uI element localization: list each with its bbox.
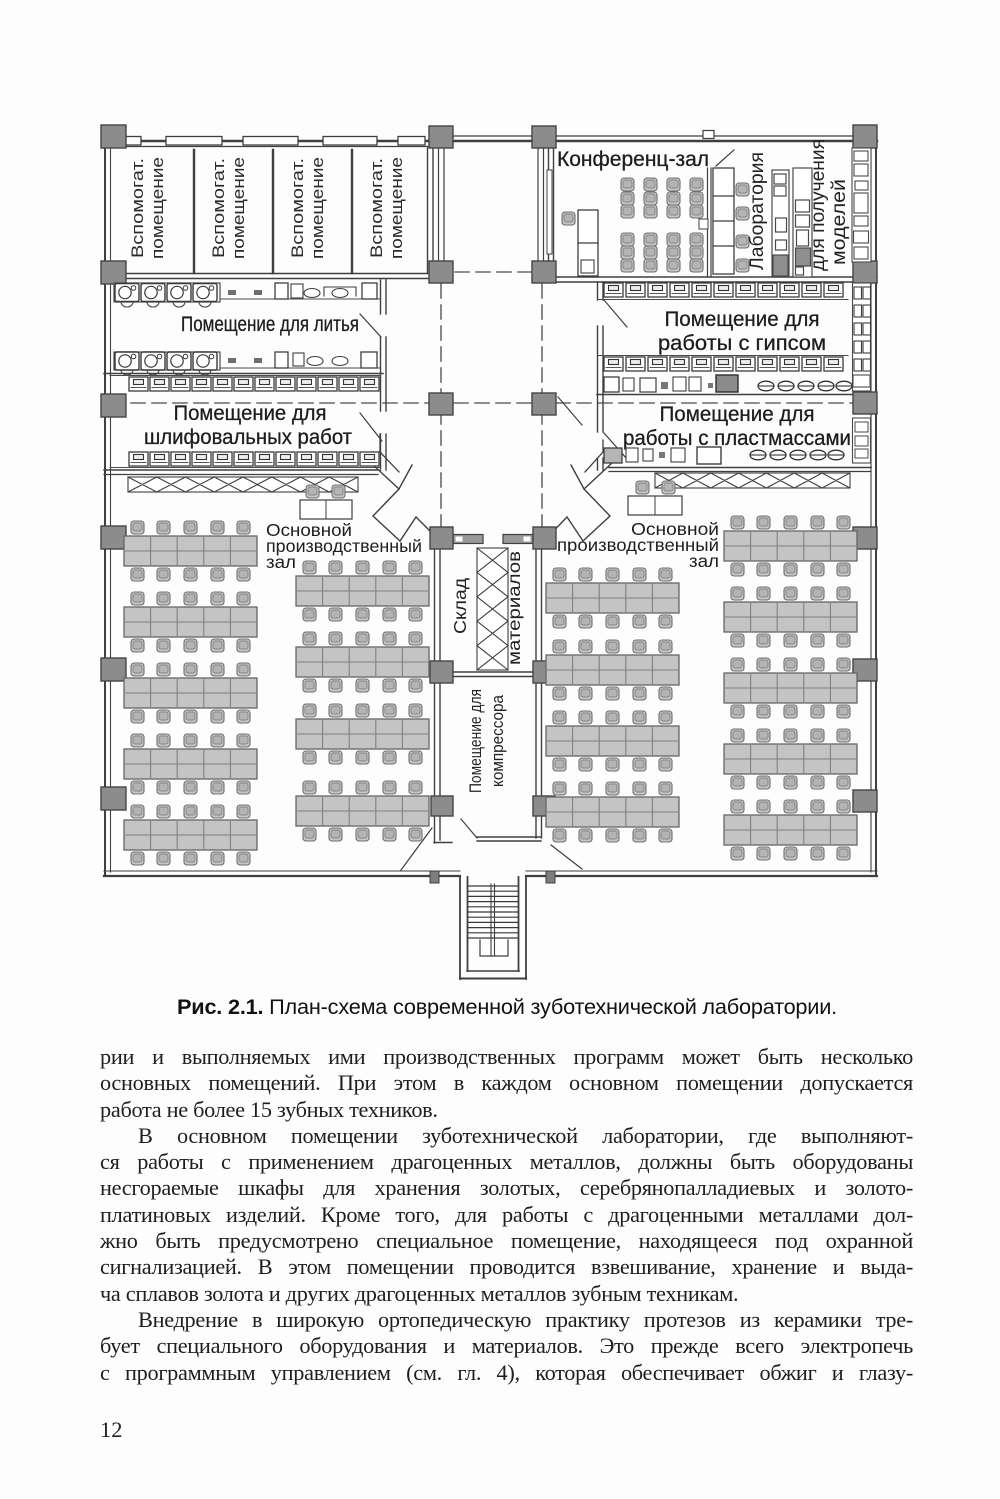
svg-text:работы с пластмассами: работы с пластмассами bbox=[623, 426, 851, 450]
svg-text:помещение: помещение bbox=[230, 157, 248, 259]
svg-text:Склад: Склад bbox=[450, 578, 470, 634]
svg-text:для получения: для получения bbox=[808, 139, 829, 271]
svg-text:помещение: помещение bbox=[309, 157, 327, 259]
svg-text:Лаборатория: Лаборатория bbox=[747, 152, 768, 270]
svg-text:шлифовальных работ: шлифовальных работ bbox=[144, 425, 352, 449]
svg-text:помещение: помещение bbox=[149, 157, 167, 259]
svg-text:Вспомогат.: Вспомогат. bbox=[368, 158, 386, 258]
svg-text:работы с гипсом: работы с гипсом bbox=[658, 331, 826, 355]
svg-text:Помещение для: Помещение для bbox=[174, 401, 327, 425]
svg-text:зал: зал bbox=[689, 551, 719, 571]
svg-text:Конференц-зал: Конференц-зал bbox=[557, 147, 709, 171]
svg-text:Помещение для: Помещение для bbox=[665, 307, 820, 331]
svg-text:моделей: моделей bbox=[829, 179, 850, 265]
svg-text:компрессора: компрессора bbox=[489, 694, 507, 787]
svg-text:Помещение для: Помещение для bbox=[467, 689, 485, 793]
svg-text:Помещение для: Помещение для bbox=[660, 402, 815, 426]
svg-text:Вспомогат.: Вспомогат. bbox=[289, 158, 307, 258]
svg-text:помещение: помещение bbox=[388, 157, 406, 259]
svg-text:Помещение для литья: Помещение для литья bbox=[181, 312, 359, 336]
svg-text:зал: зал bbox=[266, 552, 296, 572]
svg-text:Вспомогат.: Вспомогат. bbox=[129, 158, 147, 258]
svg-text:Вспомогат.: Вспомогат. bbox=[210, 158, 228, 258]
